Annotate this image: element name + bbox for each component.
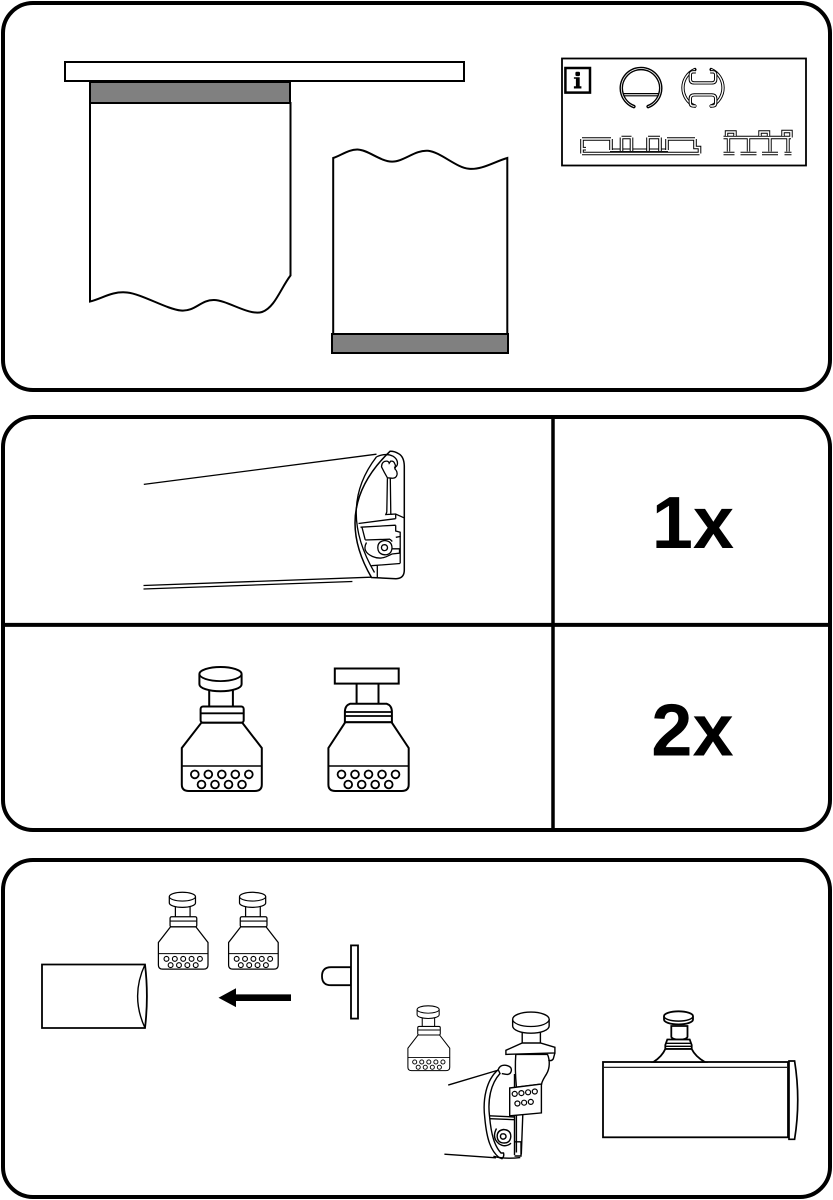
svg-text:1x: 1x: [652, 481, 734, 564]
svg-text:2x: 2x: [651, 689, 733, 772]
